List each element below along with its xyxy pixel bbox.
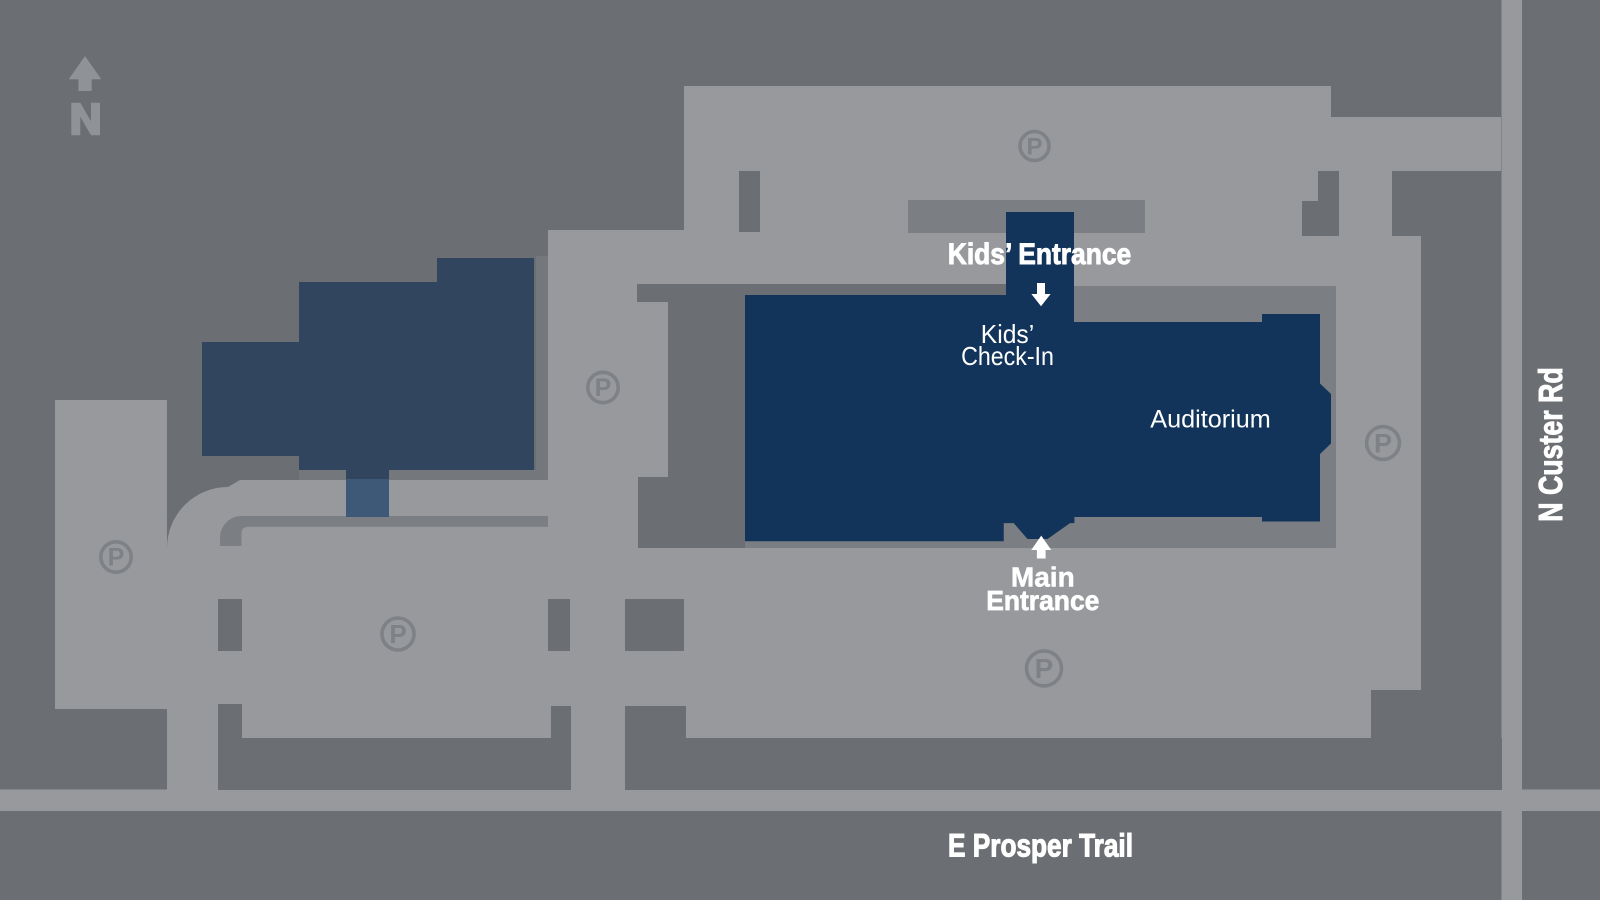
svg-text:Kids’ Entrance: Kids’ Entrance <box>948 238 1132 271</box>
svg-text:P: P <box>108 544 125 572</box>
svg-text:P: P <box>595 374 612 402</box>
svg-text:N Custer Rd: N Custer Rd <box>1532 367 1569 522</box>
svg-text:Auditorium: Auditorium <box>1150 405 1271 433</box>
svg-text:E Prosper Trail: E Prosper Trail <box>948 827 1133 863</box>
svg-text:Entrance: Entrance <box>986 585 1099 616</box>
svg-text:P: P <box>389 619 406 649</box>
svg-text:P: P <box>1026 133 1042 160</box>
svg-text:P: P <box>1035 653 1054 684</box>
svg-text:Check-In: Check-In <box>961 341 1054 371</box>
svg-text:P: P <box>1374 428 1392 458</box>
